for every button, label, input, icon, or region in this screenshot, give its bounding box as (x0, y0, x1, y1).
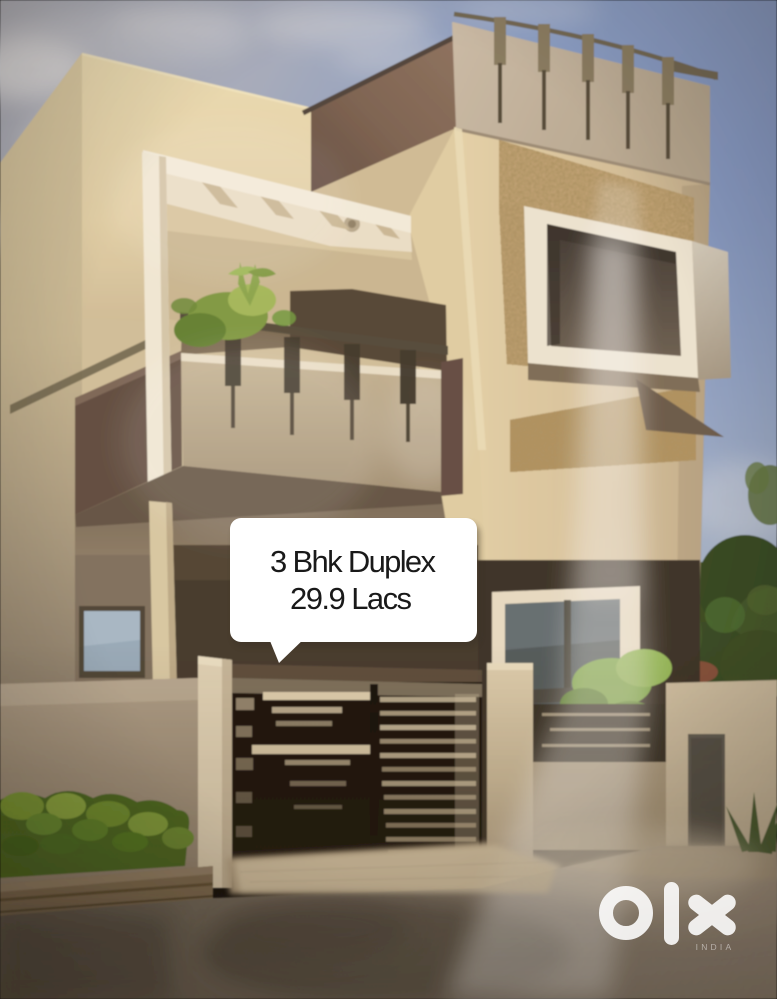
svg-text:29.9 Lacs: 29.9 Lacs (290, 581, 412, 616)
svg-text:3 Bhk Duplex: 3 Bhk Duplex (270, 544, 437, 579)
svg-text:INDIA: INDIA (696, 942, 735, 952)
